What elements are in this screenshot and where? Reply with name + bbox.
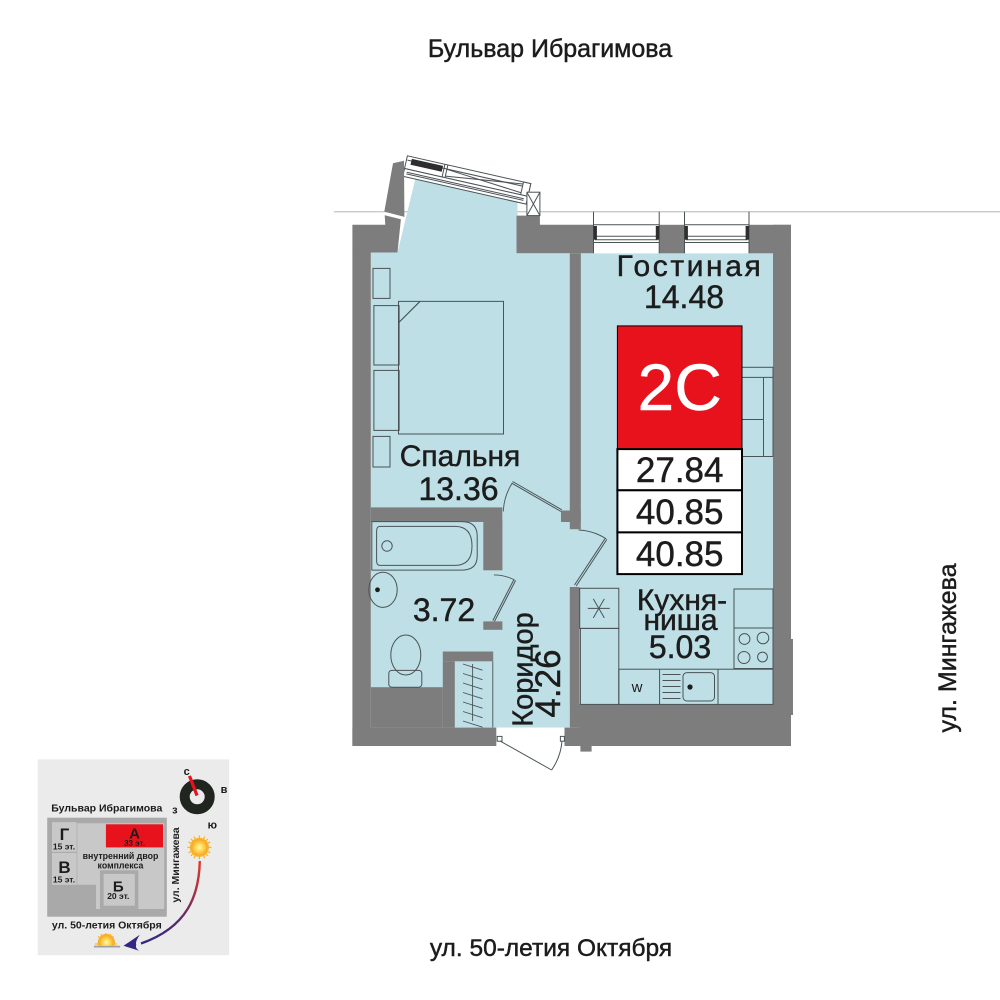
svg-text:Бульвар Ибрагимова: Бульвар Ибрагимова [428, 35, 672, 63]
svg-text:13.36: 13.36 [418, 471, 498, 507]
svg-text:15 эт.: 15 эт. [53, 875, 75, 885]
svg-text:Спальня: Спальня [400, 440, 521, 473]
svg-text:14.48: 14.48 [644, 279, 724, 315]
svg-text:33 эт.: 33 эт. [124, 839, 145, 848]
svg-text:ул. Мингажева: ул. Мингажева [934, 563, 962, 732]
svg-text:40.85: 40.85 [636, 535, 724, 574]
svg-text:ул. 50-летия Октября: ул. 50-летия Октября [430, 935, 672, 962]
svg-text:комплекса: комплекса [98, 861, 144, 871]
svg-text:Бульвар Ибрагимова: Бульвар Ибрагимова [51, 803, 162, 815]
svg-text:ул. 50-летия Октября: ул. 50-летия Октября [52, 920, 162, 932]
svg-text:5.03: 5.03 [649, 629, 711, 665]
svg-text:40.85: 40.85 [636, 493, 724, 532]
svg-text:ю: ю [208, 820, 217, 832]
svg-text:2С: 2С [638, 350, 722, 424]
svg-text:w: w [631, 679, 643, 696]
svg-text:15 эт.: 15 эт. [53, 842, 75, 852]
svg-text:20 эт.: 20 эт. [107, 891, 129, 901]
svg-text:з: з [172, 805, 178, 817]
svg-text:внутренний двор: внутренний двор [83, 851, 159, 861]
svg-text:ул. Мингажева: ул. Мингажева [170, 827, 182, 902]
svg-text:4.26: 4.26 [529, 649, 568, 717]
svg-text:с: с [184, 766, 190, 778]
svg-text:27.84: 27.84 [636, 451, 724, 490]
svg-text:3.72: 3.72 [413, 592, 475, 628]
svg-text:в: в [221, 784, 228, 796]
